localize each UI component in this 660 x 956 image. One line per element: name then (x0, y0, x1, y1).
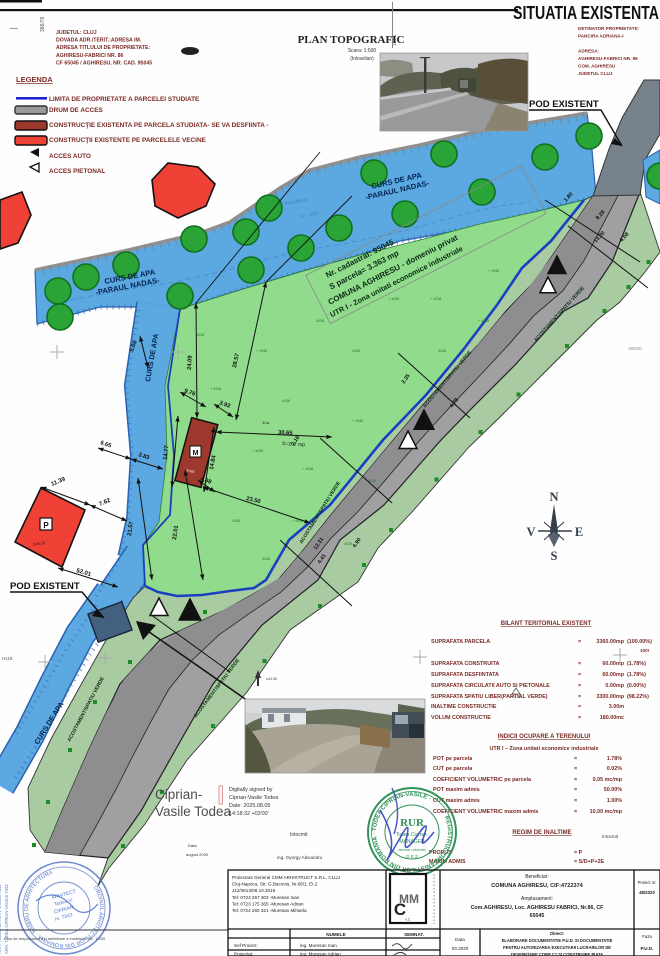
svg-text:=: = (574, 787, 577, 793)
svg-text:august 2020: august 2020 (186, 852, 209, 857)
svg-text:50.00%: 50.00% (604, 787, 622, 793)
svg-text:100!: 100! (640, 648, 650, 653)
svg-text:J12/3613/08.10.2016: J12/3613/08.10.2016 (232, 888, 276, 893)
svg-text:ADRESA:: ADRESA: (578, 49, 599, 54)
svg-text:CONSTRUCŢIE EXISTENTA PE PARC: CONSTRUCŢIE EXISTENTA PE PARCELA STUDIAT… (49, 122, 269, 129)
svg-text:14.77: 14.77 (163, 445, 170, 460)
svg-text:ADRESA TITLULUI DE PROPRIETATE: ADRESA TITLULUI DE PROPRIETATE: (56, 45, 150, 51)
svg-text:=: = (574, 777, 577, 783)
svg-text:VOLUM CONSTRUCTIE: VOLUM CONSTRUCTIE (431, 715, 491, 721)
svg-text:= S/D+P+2E: = S/D+P+2E (574, 859, 605, 865)
svg-text:=: = (578, 694, 581, 700)
svg-text:DRUM DE ACCES: DRUM DE ACCES (49, 107, 103, 114)
svg-text:atestat urbanist: atestat urbanist (398, 847, 426, 852)
svg-text:COEFICIENT VOLUMETRIC maxim ad: COEFICIENT VOLUMETRIC maxim admis (433, 809, 538, 815)
svg-text:=: = (578, 672, 581, 678)
svg-text:RUR: RUR (400, 817, 425, 829)
svg-text:POD EXISTENT: POD EXISTENT (10, 581, 80, 592)
svg-text:60.00mp: 60.00mp (602, 661, 624, 667)
svg-text:+ 4438: + 4438 (478, 319, 489, 323)
svg-text:Tel: 0723 175 365 -Muresan Adr: Tel: 0723 175 365 -Muresan Adrian (232, 901, 304, 906)
svg-text:Tel: 0724 260 321 -Muresan Mih: Tel: 0724 260 321 -Muresan Mihaela (232, 908, 307, 913)
svg-text:4438: 4438 (262, 557, 270, 561)
svg-text:PANCIRA ADRIANA-I: PANCIRA ADRIANA-I (578, 34, 624, 39)
svg-text:POT maxim admis: POT maxim admis (433, 787, 480, 793)
svg-text:Beneficiar:: Beneficiar: (525, 874, 549, 880)
svg-text:s4438: s4438 (266, 676, 278, 681)
svg-text:Proiectant General CMM ARHISTR: Proiectant General CMM ARHISTRUCT S.R.L.… (232, 875, 340, 880)
svg-text:SUPRAFATA PARCELA: SUPRAFATA PARCELA (431, 639, 490, 645)
svg-text:1.00%: 1.00% (607, 798, 622, 804)
svg-text:4438: 4438 (232, 519, 240, 523)
svg-text:+ 4438: + 4438 (302, 467, 313, 471)
svg-text:Proiectat:: Proiectat: (234, 952, 253, 956)
svg-text:60.00mp: 60.00mp (602, 672, 624, 678)
svg-text:=: = (578, 715, 581, 721)
svg-text:=: = (578, 683, 581, 689)
svg-text:(1.78%): (1.78%) (627, 672, 646, 678)
svg-text:Vasile Todea: Vasile Todea (155, 804, 232, 819)
svg-text:INALTIME CONSTRUCTIE: INALTIME CONSTRUCTIE (431, 704, 497, 710)
svg-text:CF 65045 / AGHIRESU, NR. CAD.: CF 65045 / AGHIRESU, NR. CAD. 95045 (56, 60, 152, 66)
svg-text:ELABORARE DOCUMENTATIE P.U.D.: ELABORARE DOCUMENTATIE P.U.D. SI DOCUMEN… (502, 938, 613, 943)
svg-text:P.U.D.: P.U.D. (641, 946, 654, 951)
svg-text:COEFICIENT VOLUMETRIC pe parce: COEFICIENT VOLUMETRIC pe parcela (433, 777, 532, 783)
svg-text:180/20: 180/20 (628, 346, 642, 351)
svg-text:Scara: 1:500: Scara: 1:500 (348, 48, 377, 54)
svg-text:Ciprian-: Ciprian- (155, 787, 202, 802)
svg-text:4438: 4438 (438, 349, 446, 353)
svg-text:SEMNAT.: SEMNAT. (404, 932, 424, 937)
svg-text:ARH. TODEA CIPRIAN-VASILE 7343: ARH. TODEA CIPRIAN-VASILE 7343 (4, 884, 9, 954)
svg-text:H119: H119 (2, 656, 13, 661)
svg-text:(Intravilan): (Intravilan) (350, 56, 374, 62)
svg-text:=: = (574, 756, 577, 762)
svg-text:Sef Proiect:: Sef Proiect: (234, 943, 258, 948)
svg-text:C: C (394, 900, 406, 919)
svg-text:INDICII OCUPARE A TERENULUI: INDICII OCUPARE A TERENULUI (498, 734, 591, 740)
svg-text:ACCES PIETONAL: ACCES PIETONAL (49, 168, 105, 175)
svg-text:SUPRAFATA CONSTRUITA: SUPRAFATA CONSTRUITA (431, 661, 499, 667)
svg-text:Obiect:: Obiect: (550, 931, 564, 936)
svg-text:+ 4438: + 4438 (252, 449, 263, 453)
svg-text:N: N (549, 490, 558, 504)
svg-text:JUDETUL CLUJ: JUDETUL CLUJ (578, 71, 613, 76)
svg-text:30.65: 30.65 (278, 430, 294, 437)
svg-text:0.05 mc/mp: 0.05 mc/mp (593, 777, 623, 783)
svg-text:POD EXISTENT: POD EXISTENT (529, 99, 599, 110)
svg-text:Tel: 0723 267 303 -Muresan Ioa: Tel: 0723 267 303 -Muresan Ioan (232, 895, 300, 900)
svg-text:=: = (574, 809, 577, 815)
svg-text:PENTRU AUTORIZAREA EXECUTARII: PENTRU AUTORIZAREA EXECUTARII LUCRARILOR… (503, 945, 611, 950)
svg-text:ing. Muresan Ioan: ing. Muresan Ioan (300, 943, 337, 948)
svg-text:3360.00mp: 3360.00mp (596, 639, 624, 645)
svg-text:SUPRAFATA DESFIINTATA: SUPRAFATA DESFIINTATA (431, 672, 499, 678)
svg-text:+ 4438: + 4438 (352, 419, 363, 423)
svg-text:LEGENDA: LEGENDA (16, 75, 53, 84)
svg-text:Amplasament:: Amplasament: (521, 896, 553, 902)
svg-text:=: = (578, 639, 581, 645)
svg-text:BILANT TERITORIAL EXISTENT: BILANT TERITORIAL EXISTENT (501, 621, 592, 627)
svg-text:COM. AGHIRESU: COM. AGHIRESU (578, 64, 616, 69)
svg-text:1Ca: 1Ca (262, 420, 270, 425)
svg-text:3.00m: 3.00m (609, 704, 624, 710)
svg-text:Intocmit: Intocmit (290, 832, 308, 838)
svg-text:(98.22%): (98.22%) (627, 694, 649, 700)
svg-text:Data: Data (455, 937, 465, 942)
svg-text:0.02%: 0.02% (607, 766, 622, 772)
svg-text:M: M (193, 450, 199, 457)
svg-text:POT pe parcela: POT pe parcela (433, 756, 473, 762)
svg-text:Digitally signed by: Digitally signed by (229, 787, 273, 793)
svg-text:03.2020: 03.2020 (452, 946, 469, 951)
svg-text:Plan de amplasament si delimit: Plan de amplasament si delimitare a imob… (4, 936, 106, 941)
svg-text:LIMITA DE PROPRIETATE A PARCEL: LIMITA DE PROPRIETATE A PARCELEI STUDIAT… (49, 96, 200, 103)
svg-text:(1.78%): (1.78%) (627, 661, 646, 667)
svg-text:AGHIRESU-FABRICI NR. 86: AGHIRESU-FABRICI NR. 86 (56, 53, 124, 59)
svg-text:3300.00mp: 3300.00mp (596, 694, 624, 700)
svg-text:PLAN TOPOGRAFIC: PLAN TOPOGRAFIC (298, 34, 405, 46)
svg-text:=: = (574, 766, 577, 772)
svg-text:v.2.: v.2. (405, 918, 410, 922)
svg-text:65045: 65045 (530, 913, 545, 919)
svg-text:Cluj-Napoca, Str. G.Bacovia, N: Cluj-Napoca, Str. G.Bacovia, Nr.66/1, Et… (232, 882, 318, 887)
svg-text:P: P (43, 521, 49, 530)
svg-text:Com.AGHIRESU, Loc. AGHIRESU FA: Com.AGHIRESU, Loc. AGHIRESU FABRICI, Nr.… (471, 905, 605, 911)
svg-text:4438: 4438 (196, 333, 204, 337)
svg-text:CONSTRUCŢII EXISTENTE PE PARCE: CONSTRUCŢII EXISTENTE PE PARCELELE VECIN… (49, 137, 207, 144)
svg-text:=: = (578, 704, 581, 710)
svg-text:NUMELE: NUMELE (326, 932, 345, 937)
svg-text:SUPRAFATA SPATIU LIBER(PARTIAL: SUPRAFATA SPATIU LIBER(PARTIAL VERDE) (431, 694, 548, 700)
svg-text:ing. Muresan Adrian: ing. Muresan Adrian (300, 952, 341, 956)
svg-text:0.00mp: 0.00mp (605, 683, 624, 689)
svg-text:+ 4438: + 4438 (256, 349, 267, 353)
svg-text:180.00mc: 180.00mc (600, 715, 624, 721)
svg-text:(100.00%): (100.00%) (627, 639, 652, 645)
svg-text:1.78%: 1.78% (607, 756, 622, 762)
svg-text:+ 4438: + 4438 (488, 269, 499, 273)
svg-text:4438: 4438 (316, 319, 324, 323)
svg-text:Date: 2025.08.05: Date: 2025.08.05 (229, 803, 270, 809)
svg-text:Data:: Data: (188, 843, 198, 848)
svg-text:ing. Gyorgy Alexandru: ing. Gyorgy Alexandru (277, 855, 323, 860)
svg-text:DOVADA ADR./TERIT.:ADRESA IM.: DOVADA ADR./TERIT.:ADRESA IM. (56, 38, 142, 44)
svg-text:(0.00%): (0.00%) (627, 683, 646, 689)
svg-text:+ 4438: + 4438 (388, 297, 399, 301)
svg-text:Intocmit: Intocmit (602, 834, 619, 839)
svg-text:SUPRAFATA CIRCULATII AUTO SI P: SUPRAFATA CIRCULATII AUTO SI PIETONALE (431, 683, 550, 689)
svg-text:S: S (551, 549, 558, 563)
svg-text:+ 4438: + 4438 (210, 387, 221, 391)
svg-text:=: = (578, 661, 581, 667)
svg-text:ARH. TODEA CIPRIAN-VASILE 7343: ARH. TODEA CIPRIAN-VASILE 7343 (0, 884, 2, 954)
svg-text:24.09: 24.09 (187, 355, 194, 371)
svg-text:10.00 mc/mp: 10.00 mc/mp (590, 809, 623, 815)
svg-text:SITUATIA EXISTENTA: SITUATIA EXISTENTA (513, 3, 659, 23)
svg-text:REGIM DE INALTIME: REGIM DE INALTIME (512, 830, 571, 836)
svg-text:E: E (575, 525, 583, 539)
svg-text:JUDETUL: CLUJ: JUDETUL: CLUJ (56, 30, 97, 36)
svg-text:4438: 4438 (282, 399, 290, 403)
svg-text:= P: = P (574, 850, 583, 856)
svg-text:4438: 4438 (352, 349, 360, 353)
svg-text:CUT pe parcela: CUT pe parcela (433, 766, 473, 772)
svg-text:AGHIRESU-FABRICI NR. 86: AGHIRESU-FABRICI NR. 86 (578, 56, 638, 61)
svg-text:ACCES AUTO: ACCES AUTO (49, 153, 91, 160)
svg-text:14:18:32 +03'00': 14:18:32 +03'00' (229, 811, 269, 817)
svg-text:COMUNA AGHIRESU, CIF:4722374: COMUNA AGHIRESU, CIF:4722374 (491, 883, 583, 889)
svg-text:Ciprian-Vasile Todea: Ciprian-Vasile Todea (229, 795, 278, 801)
svg-text:Proiect nr.: Proiect nr. (638, 880, 657, 885)
svg-text:Faza: Faza (642, 934, 652, 939)
svg-text:V: V (526, 525, 535, 539)
svg-text:D E Z: D E Z (406, 854, 418, 859)
svg-text:DETINATOR PROPRIETATE:: DETINATOR PROPRIETATE: (578, 26, 640, 31)
svg-text:=: = (574, 798, 577, 804)
svg-text:388/78: 388/78 (40, 16, 46, 32)
svg-text:48/2020: 48/2020 (639, 890, 655, 895)
svg-text:+ 4438: + 4438 (430, 297, 441, 301)
svg-text:UTR I – Zona unitati economice: UTR I – Zona unitati economice industria… (489, 746, 598, 752)
svg-text:DESFIINTARE CORP C1 SI CONSTRU: DESFIINTARE CORP C1 SI CONSTRUIRE PIATA (511, 952, 603, 956)
